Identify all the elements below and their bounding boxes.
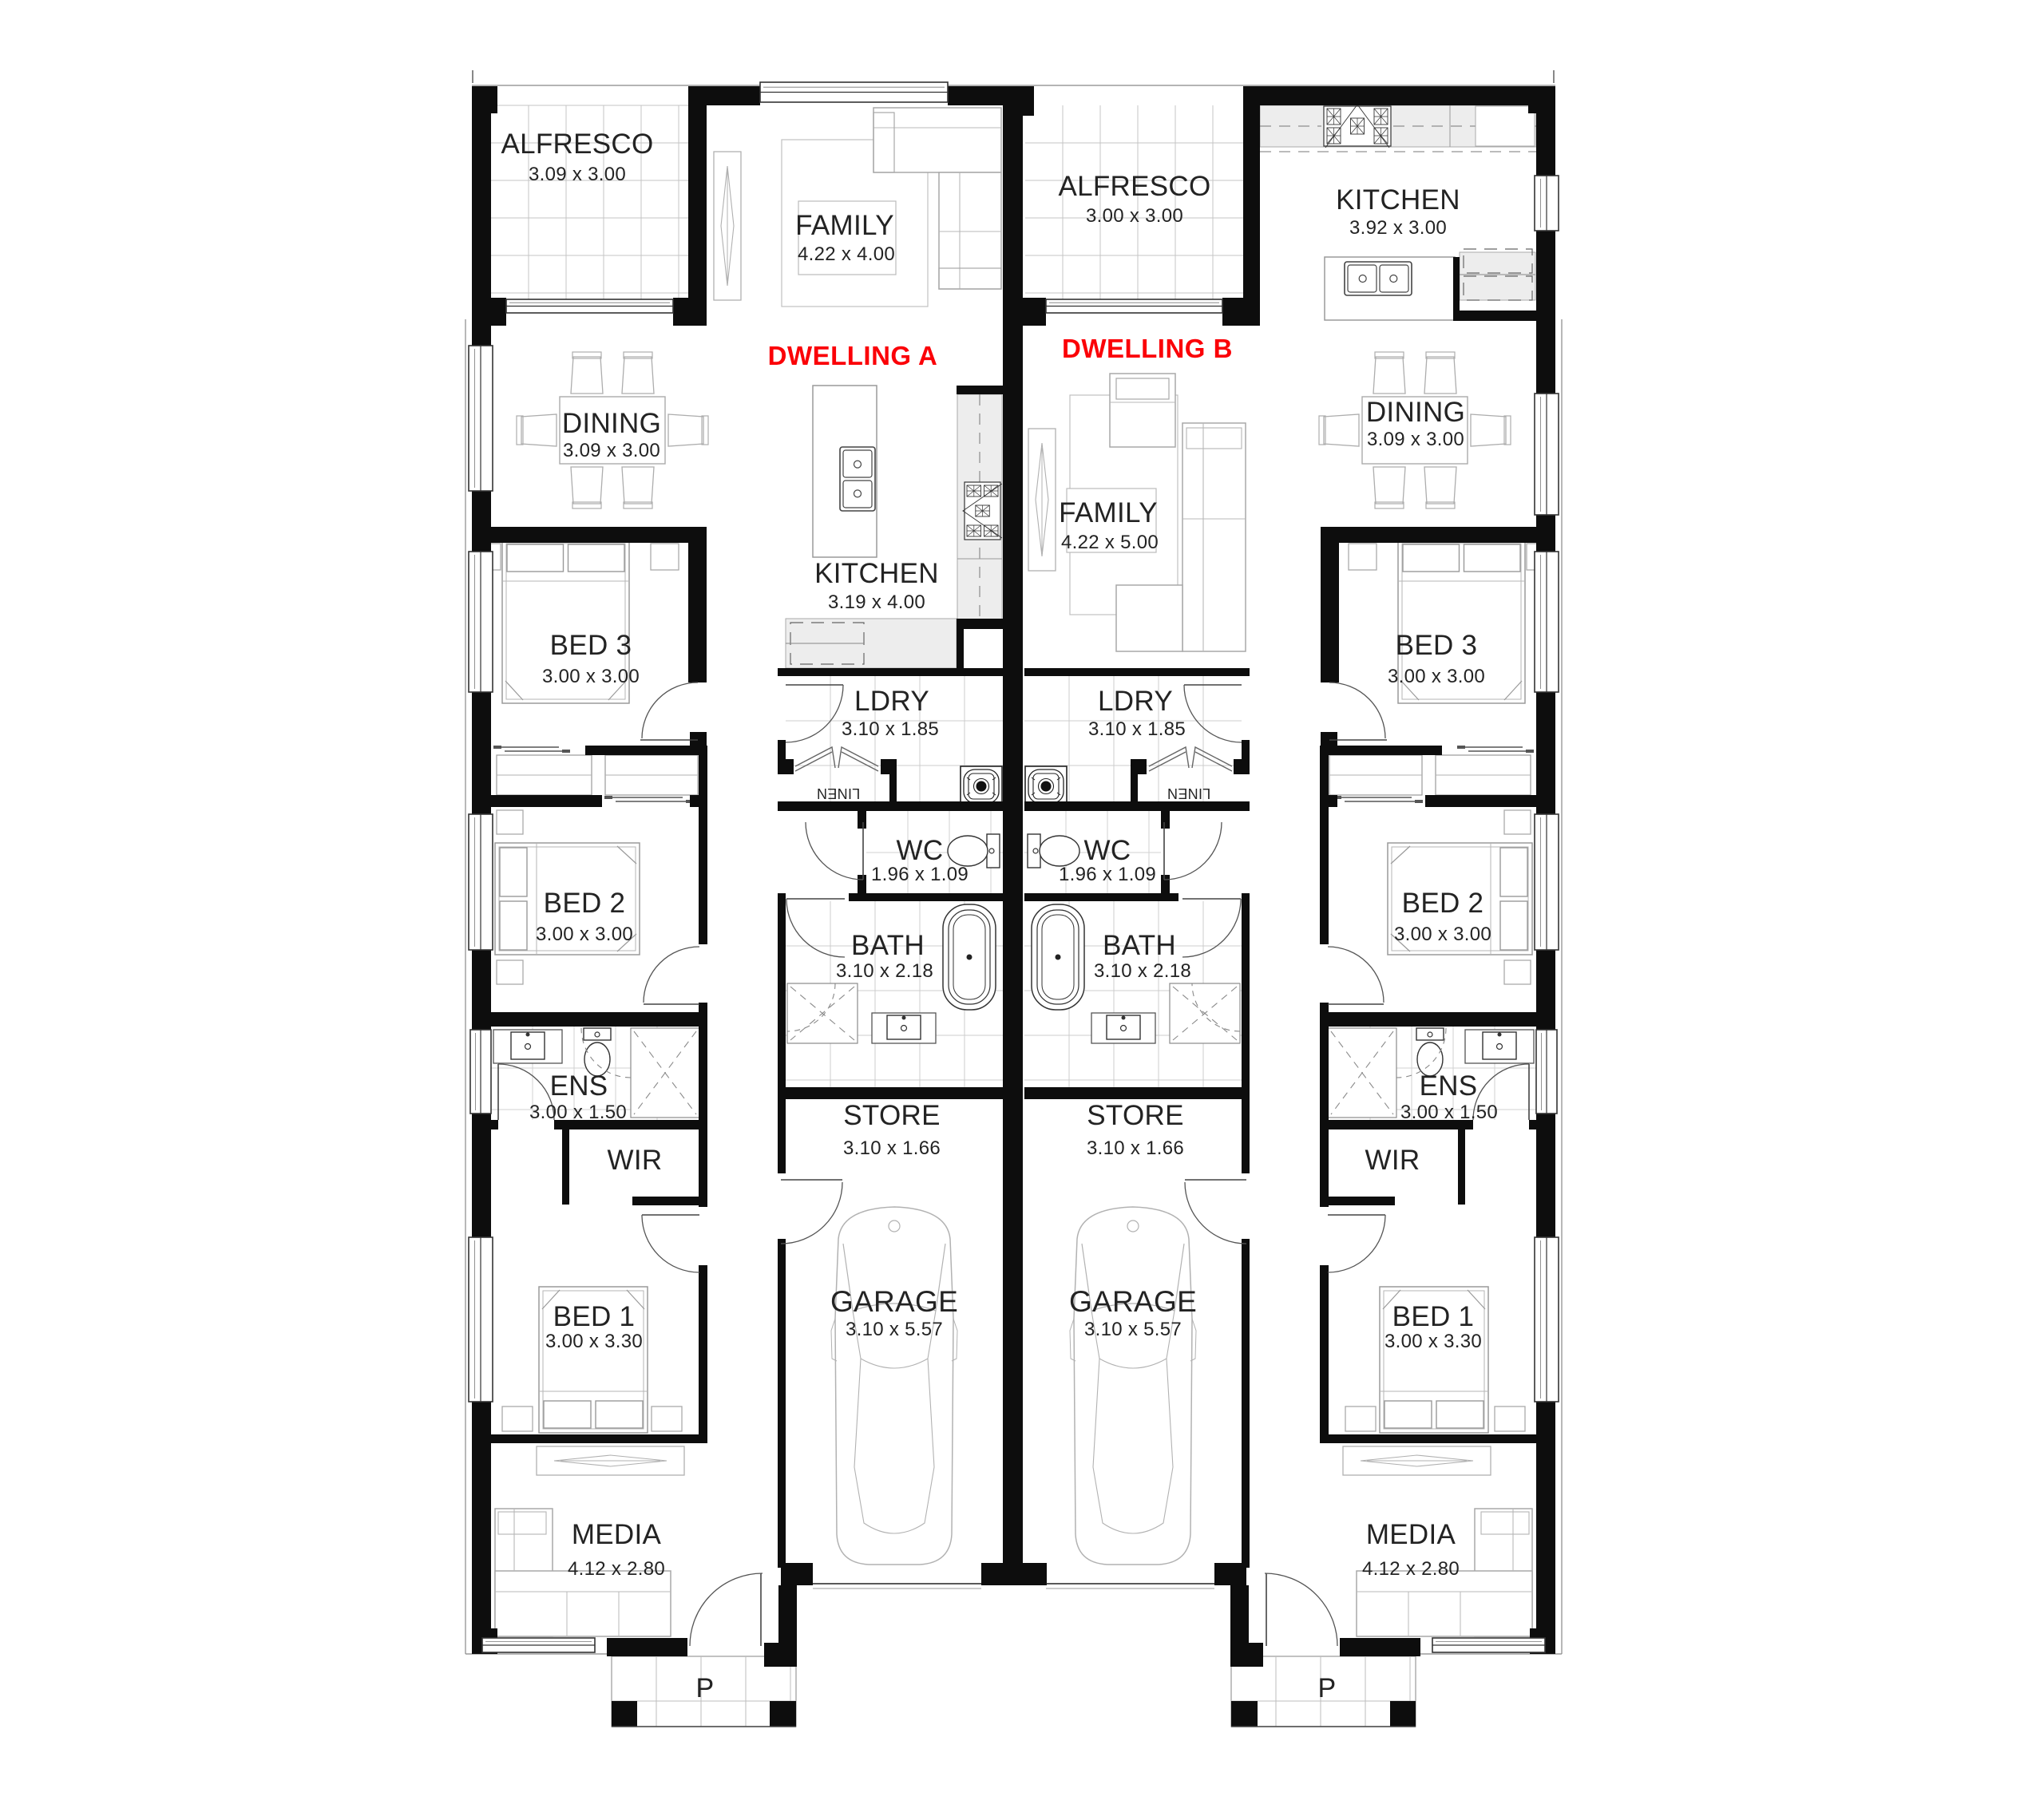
svg-text:GARAGE: GARAGE bbox=[830, 1285, 958, 1318]
svg-text:WIR: WIR bbox=[608, 1145, 663, 1176]
svg-text:3.00 x 3.30: 3.00 x 3.30 bbox=[1384, 1331, 1482, 1352]
svg-text:1.96 x 1.09: 1.96 x 1.09 bbox=[871, 864, 969, 885]
svg-text:3.10 x 1.66: 3.10 x 1.66 bbox=[843, 1137, 941, 1159]
svg-text:ENS: ENS bbox=[1420, 1070, 1478, 1102]
svg-text:3.10 x 1.66: 3.10 x 1.66 bbox=[1087, 1137, 1184, 1159]
svg-text:3.09 x 3.00: 3.09 x 3.00 bbox=[563, 440, 660, 461]
svg-text:DINING: DINING bbox=[562, 408, 661, 439]
svg-text:LDRY: LDRY bbox=[854, 686, 929, 717]
svg-text:KITCHEN: KITCHEN bbox=[814, 558, 939, 589]
svg-text:BATH: BATH bbox=[1103, 930, 1176, 961]
svg-text:LINEN: LINEN bbox=[1167, 785, 1211, 801]
svg-text:FAMILY: FAMILY bbox=[795, 210, 894, 241]
svg-text:DWELLING A: DWELLING A bbox=[768, 341, 938, 370]
svg-text:DWELLING B: DWELLING B bbox=[1062, 334, 1233, 363]
svg-text:FAMILY: FAMILY bbox=[1059, 497, 1158, 528]
svg-text:STORE: STORE bbox=[1087, 1100, 1183, 1131]
svg-text:3.00 x 3.00: 3.00 x 3.00 bbox=[542, 666, 640, 687]
svg-text:LINEN: LINEN bbox=[817, 785, 861, 801]
svg-text:3.00 x 1.50: 3.00 x 1.50 bbox=[1400, 1102, 1498, 1123]
svg-text:3.10 x 2.18: 3.10 x 2.18 bbox=[1094, 960, 1191, 982]
svg-text:ALFRESCO: ALFRESCO bbox=[1058, 171, 1210, 202]
svg-text:ENS: ENS bbox=[550, 1070, 608, 1102]
svg-text:P: P bbox=[1318, 1673, 1337, 1703]
svg-text:BED 2: BED 2 bbox=[1402, 888, 1484, 919]
svg-text:BED 1: BED 1 bbox=[553, 1301, 636, 1332]
svg-text:3.19 x 4.00: 3.19 x 4.00 bbox=[828, 591, 925, 613]
svg-text:3.00 x 3.00: 3.00 x 3.00 bbox=[536, 924, 633, 945]
svg-text:WC: WC bbox=[897, 835, 944, 866]
svg-text:3.09 x 3.00: 3.09 x 3.00 bbox=[529, 164, 626, 185]
svg-text:3.00 x 3.00: 3.00 x 3.00 bbox=[1388, 666, 1485, 687]
svg-text:3.00 x 1.50: 3.00 x 1.50 bbox=[529, 1102, 627, 1123]
svg-text:BED 3: BED 3 bbox=[1396, 630, 1478, 661]
svg-text:3.92 x 3.00: 3.92 x 3.00 bbox=[1349, 217, 1447, 239]
svg-text:BED 1: BED 1 bbox=[1392, 1301, 1475, 1332]
svg-text:3.10 x 5.57: 3.10 x 5.57 bbox=[846, 1319, 943, 1340]
svg-text:3.10 x 5.57: 3.10 x 5.57 bbox=[1084, 1319, 1182, 1340]
svg-text:MEDIA: MEDIA bbox=[1366, 1519, 1456, 1550]
svg-text:WC: WC bbox=[1084, 835, 1131, 866]
svg-text:3.00 x 3.00: 3.00 x 3.00 bbox=[1394, 924, 1491, 945]
svg-text:DINING: DINING bbox=[1366, 397, 1465, 428]
svg-text:3.09 x 3.00: 3.09 x 3.00 bbox=[1367, 429, 1464, 450]
svg-text:GARAGE: GARAGE bbox=[1069, 1285, 1197, 1318]
svg-text:3.10 x 2.18: 3.10 x 2.18 bbox=[836, 960, 933, 982]
svg-text:3.00 x 3.30: 3.00 x 3.30 bbox=[545, 1331, 643, 1352]
svg-text:ALFRESCO: ALFRESCO bbox=[501, 129, 653, 160]
svg-text:MEDIA: MEDIA bbox=[572, 1519, 662, 1550]
svg-text:WIR: WIR bbox=[1365, 1145, 1420, 1176]
svg-text:LDRY: LDRY bbox=[1098, 686, 1173, 717]
svg-text:BATH: BATH bbox=[851, 930, 925, 961]
svg-text:4.12 x 2.80: 4.12 x 2.80 bbox=[568, 1558, 665, 1580]
svg-text:KITCHEN: KITCHEN bbox=[1336, 184, 1460, 216]
svg-text:P: P bbox=[696, 1673, 715, 1703]
svg-text:3.10 x 1.85: 3.10 x 1.85 bbox=[1088, 718, 1186, 740]
svg-text:3.00 x 3.00: 3.00 x 3.00 bbox=[1086, 205, 1183, 227]
svg-text:4.22 x 4.00: 4.22 x 4.00 bbox=[798, 243, 895, 265]
svg-text:STORE: STORE bbox=[843, 1100, 940, 1131]
svg-text:3.10 x 1.85: 3.10 x 1.85 bbox=[842, 718, 939, 740]
svg-text:4.22 x 5.00: 4.22 x 5.00 bbox=[1061, 532, 1159, 553]
svg-text:1.96 x 1.09: 1.96 x 1.09 bbox=[1059, 864, 1156, 885]
svg-text:BED 3: BED 3 bbox=[550, 630, 632, 661]
svg-text:BED 2: BED 2 bbox=[544, 888, 626, 919]
svg-text:4.12 x 2.80: 4.12 x 2.80 bbox=[1362, 1558, 1460, 1580]
